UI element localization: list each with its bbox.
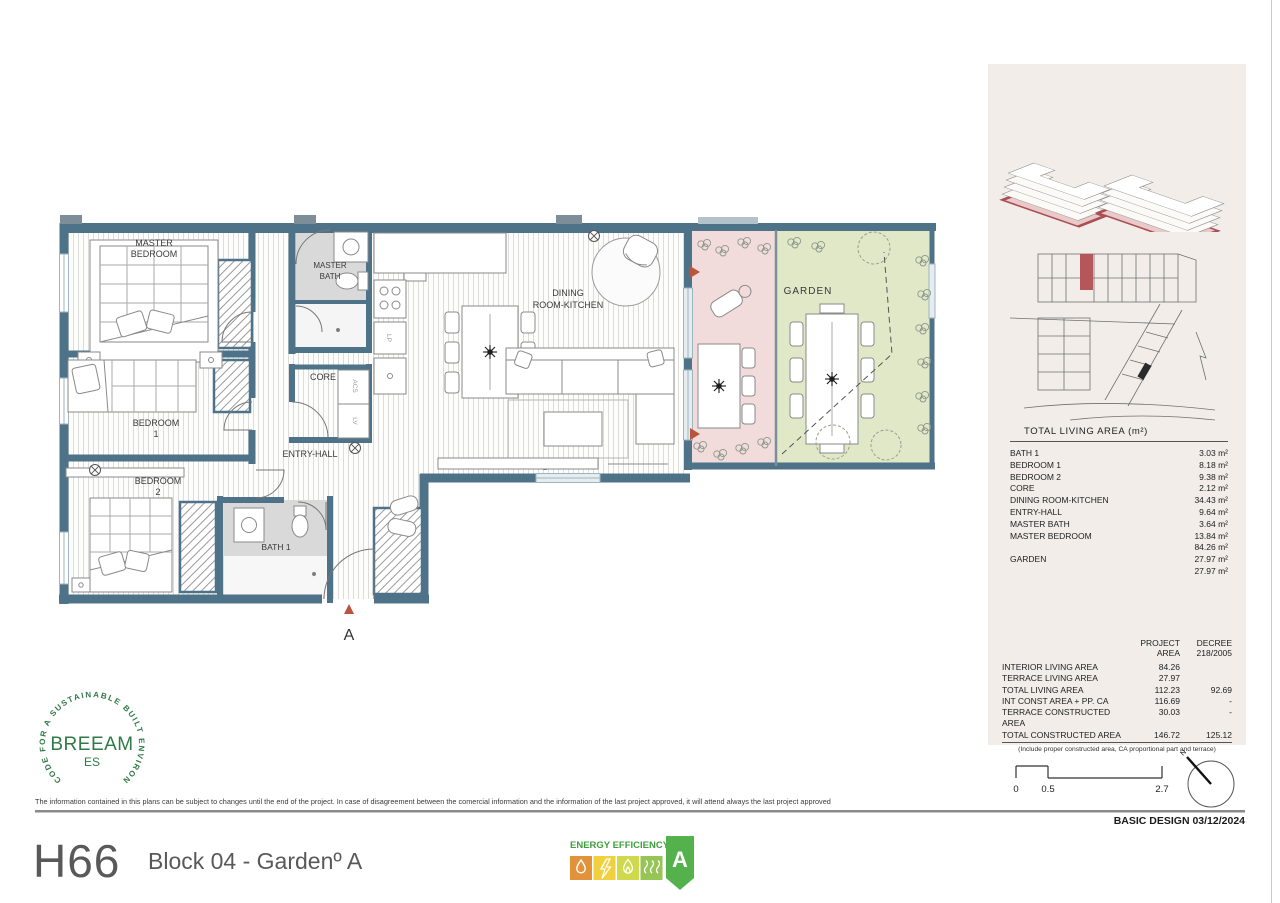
breeam-brand: BREEAM <box>50 734 133 755</box>
dining-label: DINING <box>552 288 584 298</box>
table-row subtotal: 84.26 m² <box>1010 542 1228 554</box>
master-bath-label: MASTER <box>313 261 347 270</box>
building-left <box>1002 163 1110 227</box>
energy-rating: A <box>672 847 688 872</box>
area-table-title: TOTAL LIVING AREA (m²) <box>1010 426 1228 442</box>
plan-sheet: LP ACS LV <box>0 0 1280 903</box>
core-label: CORE <box>310 372 336 382</box>
svg-text:A: A <box>344 627 355 644</box>
plant-icon <box>483 345 497 359</box>
svg-text:2.7: 2.7 <box>1155 784 1168 795</box>
ceiling-lamp-icon <box>589 231 600 242</box>
table-row: CORE2.12 m² <box>1010 483 1228 495</box>
section-arrow-icon <box>344 604 354 614</box>
closet-lv-label: LV <box>351 417 358 425</box>
table-row subtotal: 27.97 m² <box>1010 566 1228 578</box>
highlighted-unit <box>1080 254 1093 290</box>
svg-text:0.5: 0.5 <box>1041 784 1054 795</box>
table-row: INT CONST AREA + PP. CA116.69- <box>1002 696 1232 707</box>
table-row: BATH 13.03 m² <box>1010 448 1228 460</box>
section-marker: A <box>344 604 355 644</box>
bath1-label: BATH 1 <box>261 542 290 552</box>
energy-title: ENERGY EFFICIENCY <box>570 840 670 851</box>
entry-hall-label: ENTRY-HALL <box>282 449 337 459</box>
table-row: BEDROOM 18.18 m² <box>1010 460 1228 472</box>
closet-lp-label: LP <box>385 334 392 342</box>
ceiling-lamp-icon <box>350 443 361 454</box>
table-row: TERRACE CONSTRUCTED AREA30.03- <box>1002 707 1232 730</box>
table-row: ENTRY-HALL9.64 m² <box>1010 507 1228 519</box>
svg-text:1: 1 <box>153 429 158 439</box>
bedroom1-bed <box>68 360 196 412</box>
svg-text:ROOM-KITCHEN: ROOM-KITCHEN <box>533 300 604 310</box>
disclaimer-text: The information contained in this plans … <box>35 797 945 806</box>
table-row: TERRACE LIVING AREA27.97 <box>1002 673 1232 684</box>
summary-table: PROJECTAREA DECREE218/2005 INTERIOR LIVI… <box>1002 638 1232 753</box>
table-row: GARDEN27.97 m² <box>1010 554 1228 566</box>
breeam-logo: CODE FOR A SUSTAINABLE BUILT ENVIRONMENT… <box>34 686 152 804</box>
bedroom2-label: BEDROOM <box>135 476 182 486</box>
summary-header: PROJECTAREA DECREE218/2005 <box>1002 638 1232 658</box>
wall-stubs <box>60 215 758 224</box>
footer-divider <box>35 810 1245 813</box>
closet-acs-label: ACS <box>351 379 358 393</box>
master-bedroom-label: MASTER <box>135 238 173 248</box>
scale-bar: 0 0.5 2.7 <box>1006 758 1176 804</box>
area-table: TOTAL LIVING AREA (m²) BATH 13.03 m² BED… <box>1010 426 1228 578</box>
north-arrow: N <box>1173 746 1241 814</box>
svg-text:BATH: BATH <box>320 272 341 281</box>
ceiling-lamp-icon <box>90 465 101 476</box>
table-row: MASTER BATH3.64 m² <box>1010 519 1228 531</box>
svg-text:BEDROOM: BEDROOM <box>131 249 178 259</box>
site-plan <box>1010 240 1224 422</box>
table-row: BEDROOM 29.38 m² <box>1010 472 1228 484</box>
north-label: N <box>1179 749 1188 758</box>
unit-subtitle: Block 04 - Gardenº A <box>148 848 362 875</box>
page-border <box>1271 0 1272 903</box>
energy-icons <box>570 856 663 880</box>
table-row: DINING ROOM-KITCHEN34.43 m² <box>1010 495 1228 507</box>
energy-label: ENERGY EFFICIENCY A <box>568 834 696 894</box>
garden-label: GARDEN <box>784 286 833 297</box>
building-right <box>1098 173 1224 232</box>
stage-label: BASIC DESIGN 03/12/2024 <box>1000 815 1245 827</box>
table-row: INTERIOR LIVING AREA84.26 <box>1002 662 1232 673</box>
unit-code: H66 <box>33 834 120 888</box>
table-row: TOTAL CONSTRUCTED AREA146.72125.12 <box>1002 730 1232 741</box>
bedroom1-label: BEDROOM <box>133 418 180 428</box>
floor-plan: LP ACS LV <box>38 202 948 662</box>
master-bed <box>78 240 222 368</box>
cooktop <box>374 280 406 318</box>
svg-text:0: 0 <box>1013 784 1018 795</box>
svg-text:2: 2 <box>155 487 160 497</box>
kitchen-sink <box>374 358 406 394</box>
breeam-region: ES <box>84 755 100 769</box>
info-panel: TOTAL LIVING AREA (m²) BATH 13.03 m² BED… <box>988 64 1246 745</box>
building-axonometric <box>994 70 1240 232</box>
table-row: MASTER BEDROOM13.84 m² <box>1010 531 1228 543</box>
table-row: TOTAL LIVING AREA112.2392.69 <box>1002 685 1232 696</box>
